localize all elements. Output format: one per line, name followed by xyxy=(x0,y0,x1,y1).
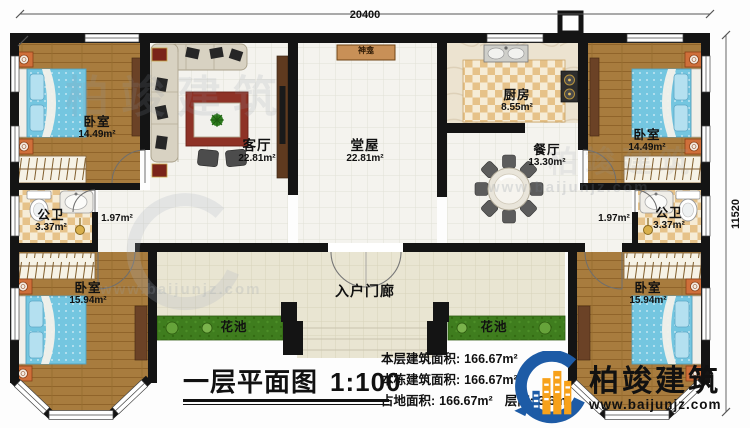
brand-logo: 柏竣建筑 www.baijunjz.com xyxy=(505,351,750,427)
shrine-label: 神龛 xyxy=(337,47,395,56)
brand-company-name: 柏竣建筑 xyxy=(589,366,722,398)
room-label-hall: 堂屋 22.81m² xyxy=(320,138,410,164)
dresser-icon xyxy=(135,306,147,360)
dimension-right: 11520 xyxy=(730,186,742,242)
room-label-kitchen: 厨房 8.55m² xyxy=(472,88,562,113)
room-label-bath-left: 公卫 3.37m² xyxy=(12,208,90,233)
brand-logo-icon xyxy=(505,351,587,427)
room-label-porch: 入户门廊 xyxy=(310,284,420,300)
title-underline-thin xyxy=(183,404,389,405)
side-table-icon xyxy=(152,48,167,61)
kitchen-sink-icon xyxy=(484,45,528,62)
flower-bed-left-label: 花池 xyxy=(202,320,266,334)
room-label-bedroom-bl: 卧室 15.94m² xyxy=(43,281,133,306)
side-table-icon xyxy=(152,164,167,177)
room-label-living: 客厅 22.81m² xyxy=(212,138,302,164)
floor-plan-page: 柏竣建筑 柏竣建筑 www.baijunjz.com www.baijunjz.… xyxy=(0,0,750,428)
room-label-bedroom-tl: 卧室 14.49m² xyxy=(52,115,142,140)
room-label-bedroom-br: 卧室 15.94m² xyxy=(603,281,693,306)
room-label-bedroom-tr: 卧室 14.49m² xyxy=(602,128,692,153)
plan-title: 一层平面图1:100 xyxy=(183,362,393,399)
room-label-corridor-right: 1.97m² xyxy=(582,213,646,224)
bed-icon xyxy=(16,296,86,364)
page-title: 一层平面图 xyxy=(183,367,318,397)
plant-icon xyxy=(539,322,551,334)
chimney-icon xyxy=(560,13,581,33)
dresser-icon xyxy=(590,58,599,136)
brand-website: www.baijunjz.com xyxy=(589,397,722,412)
room-label-dining: 餐厅 13.30m² xyxy=(502,143,592,168)
title-underline-thick xyxy=(183,399,389,402)
stove-icon xyxy=(561,71,578,102)
room-label-corridor-left: 1.97m² xyxy=(85,213,149,224)
plant-icon xyxy=(166,322,178,334)
watermark-text: www.baijunjz.com xyxy=(487,179,649,196)
dimension-top: 20400 xyxy=(330,9,400,21)
flower-bed-right-label: 花池 xyxy=(462,320,526,334)
bed-icon xyxy=(632,69,701,137)
